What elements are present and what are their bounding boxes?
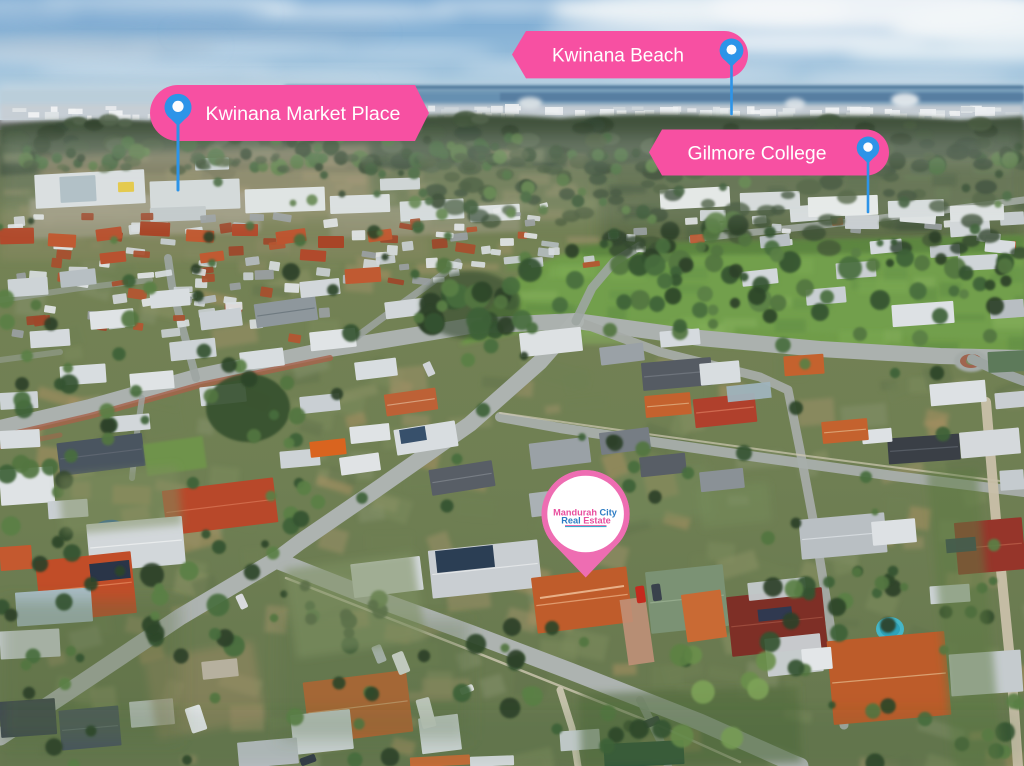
- svg-text:Kwinana Market Place: Kwinana Market Place: [206, 103, 401, 125]
- svg-text:Gilmore College: Gilmore College: [687, 143, 826, 165]
- svg-text:Kwinana Beach: Kwinana Beach: [552, 46, 684, 67]
- svg-text:Real Estate: Real Estate: [561, 516, 611, 526]
